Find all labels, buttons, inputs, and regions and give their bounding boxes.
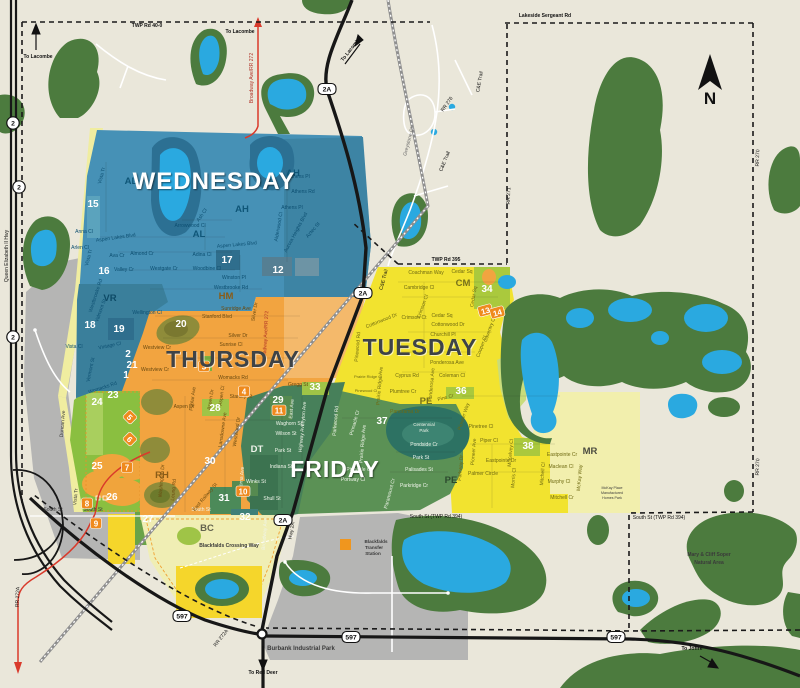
zone-number: 30 [204,456,216,467]
map-text-label: Adina Cl [193,252,212,258]
zone-number: 24 [91,397,103,408]
zone-number: 32 [239,512,251,523]
map-text-label: McKay Place [602,486,623,490]
zone-number: 20 [175,319,187,330]
map-text-label: Mary & Cliff Soper [687,552,730,558]
map-text-label: Park [419,428,429,433]
map-text-label: South St (TWP Rd 394) [633,515,686,521]
zone-badge-number: 8 [85,500,90,509]
neighborhood-label: VR [103,293,116,304]
zone-number: 17 [221,255,233,266]
map-text-label: Blackfalds Crossing Way [199,543,259,549]
map-text-label: RR 270 [755,458,762,475]
map-text-label: Park St [413,455,430,461]
map-text-label: Gregg St [288,382,309,388]
map-text-label: Woodbine Cl [193,266,222,272]
map-text-label: Pondside Cr [410,442,438,448]
shield-number: 2 [11,334,15,341]
map-text-label: RR 270 [755,149,762,166]
highway-shield: 2A [318,84,336,95]
map-text-label: South St [43,507,63,513]
zone-number: 16 [98,266,110,277]
zone-number: 26 [106,492,118,503]
map-text-label: Pinetree Cl [469,424,494,430]
map-text-label: Winks St [246,479,266,485]
map-text-label: Silver Dr [228,333,248,339]
zone-number: 2 [125,349,131,360]
map-text-label: Cottonwood Dr [431,322,465,328]
zone-number: 19 [113,324,125,335]
map-text-label: Cedar Sq [451,269,472,275]
shield-number: 2 [17,184,21,191]
highway-shield: 2 [7,117,19,129]
neighborhood-label: RH [155,470,169,481]
map-text-label: TWP Rd 40-0 [132,23,163,29]
shield-number: 2A [359,290,368,297]
zone-number: 37 [376,416,388,427]
zone-badge-number: 11 [275,407,284,416]
map-text-label: To Lacombe [23,54,52,60]
map-text-label: Vista Cl [65,344,82,350]
zone-number: 18 [84,320,96,331]
map-canvas: N TWP Rd 40-0Lakeside Sergeant RdTWP Rd … [0,0,800,688]
zone-badge: 7 [122,462,133,473]
map-text-label: Arlen Cl [71,245,89,251]
highway-shield: 2A [354,288,372,299]
map-text-label: Winston Pl [222,275,246,281]
map-text-label: Mitchell Cr [550,495,574,501]
map-text-label: Palmer Circle [468,471,498,477]
map-text-label: Cyprus Rd [395,373,419,379]
map-text-label: Almond Cr [130,251,154,257]
map-text-label: Anna Cl [75,229,93,235]
neighborhood-label: BC [200,523,214,534]
map-text-label: Queen Elizabeth II Hwy [4,229,10,282]
zone-badge: 8 [82,498,93,509]
zone-badge-number: 4 [242,388,247,397]
zone-number: 23 [107,390,119,401]
map-text-label: Murphy Cl [548,479,571,485]
map-text-label: Womacks Rd [218,375,248,381]
zone-badge: 11 [272,405,286,416]
map-text-label: Westgate Cr [150,266,178,272]
zone-number: 31 [218,493,230,504]
map-text-label: Stanford Blvd [202,314,232,320]
zone-number: 34 [481,284,493,295]
zone-badge-number: 7 [125,464,130,473]
neighborhood-label: DT [251,444,264,455]
map-text-label: To Joffre [681,646,702,652]
day-zone-label: THURSDAY [166,346,300,372]
day-zone-label: FRIDAY [290,456,380,482]
zone-badge-number: 9 [94,520,99,529]
map-text-label: Valley Cr [114,267,134,273]
zone-number: 33 [309,382,321,393]
shield-number: 2A [279,517,288,524]
transfer-station-icon [340,539,351,550]
highway-shield: 597 [342,632,360,643]
map-text-label: Prairie Ridge Cl [354,374,382,379]
neighborhood-label: HM [219,291,234,302]
zone-badge: 10 [236,486,250,497]
map-text-label: Station [365,551,381,556]
map-text-label: Athens Pl [281,205,302,211]
map-text-label: Piper Cl [480,438,498,444]
map-text-label: TWP Rd 395 [432,257,461,263]
map-text-label: Palisades St [405,467,433,473]
blackfalds-collection-map: N TWP Rd 40-0Lakeside Sergeant RdTWP Rd … [0,0,800,688]
neighborhood-label: MR [583,446,598,457]
neighborhood-label: AH [235,204,249,215]
map-text-label: Crimson Ct [401,315,427,321]
map-text-label: Centennial [413,422,435,427]
roundabout [258,630,267,639]
map-text-label: Park St [275,448,292,454]
map-text-label: RR 272A [15,586,22,607]
map-text-label: Manufactured [601,491,623,495]
zone-number: 28 [209,403,221,414]
highway-shield: 597 [173,611,191,622]
map-text-label: To Red Deer [248,670,277,676]
zone-number: 25 [91,461,103,472]
map-text-label: Homes Park [602,496,622,500]
map-text-label: Burbank Industrial Park [267,646,335,652]
shield-number: 597 [610,634,622,641]
map-text-label: Cedar Sq [431,313,452,319]
zone-number: 36 [455,386,467,397]
shield-number: 597 [345,634,357,641]
highway-shield: 2A [274,515,292,526]
map-text-label: Westview Cr [141,367,169,373]
map-text-label: Blackfalds [365,539,388,544]
zone-badge: 9 [91,518,102,529]
map-text-label: Transfer [365,545,383,550]
neighborhood-label: PE [445,475,458,486]
neighborhood-label: CM [456,278,471,289]
day-zone-label: WEDNESDAY [133,168,296,195]
shield-number: 597 [176,613,188,620]
map-text-label: South St (TWP Rd 394) [410,514,463,520]
map-text-label: Parkridge Cr [400,483,428,489]
map-text-label: Wellington Cl [132,310,161,316]
zone-number: 29 [272,395,284,406]
map-text-label: Natural Area [694,560,724,566]
neighborhood-label: PE [420,396,433,407]
map-text-label: Ponderosa Ave [430,360,464,366]
zone-badge-number: 10 [239,488,248,497]
map-text-label: Coleman Cl [439,373,465,379]
shield-number: 2A [323,86,332,93]
map-text-label: Maclean Cl [548,464,573,470]
map-text-label: Sunridge Ave [221,306,251,312]
highway-shield: 2 [13,181,25,193]
zone-number: 1 [123,370,129,381]
neighborhood-label: AL [193,229,206,240]
map-text-label: RR 271 [506,187,513,204]
map-text-label: Wilson St [275,431,297,437]
day-zone-label: TUESDAY [363,334,478,360]
shield-number: 2 [11,120,15,127]
map-text-label: To Lacombe [225,29,254,35]
compass-n-label: N [704,89,716,108]
zone-number: 12 [272,265,284,276]
zone-number: 21 [126,360,138,371]
map-text-label: Coachman Way [408,270,444,276]
map-text-label: Pinewood Cl [355,388,378,393]
map-text-label: Lakeside Sergeant Rd [519,13,571,19]
map-text-label: Waghorn St [276,421,303,427]
zone-number: 38 [522,441,534,452]
zone-number: 15 [87,199,99,210]
zone-number: 27 [142,514,154,525]
map-text-label: Eastpointe Dr [486,458,517,464]
map-text-label: Panorama Dr [390,409,420,415]
map-text-label: Broadway Ave/RR 272 [249,53,255,103]
zone-badge: 4 [239,386,250,397]
highway-shield: 2 [7,331,19,343]
map-text-label: Cambridge Cl [404,285,435,291]
highway-shield: 597 [607,632,625,643]
map-text-label: Eastpointe Cr [547,452,578,458]
map-text-label: Plumtree Cr [390,389,417,395]
map-text-label: Ava Cr [109,253,125,259]
map-text-label: Shull St [263,496,281,502]
